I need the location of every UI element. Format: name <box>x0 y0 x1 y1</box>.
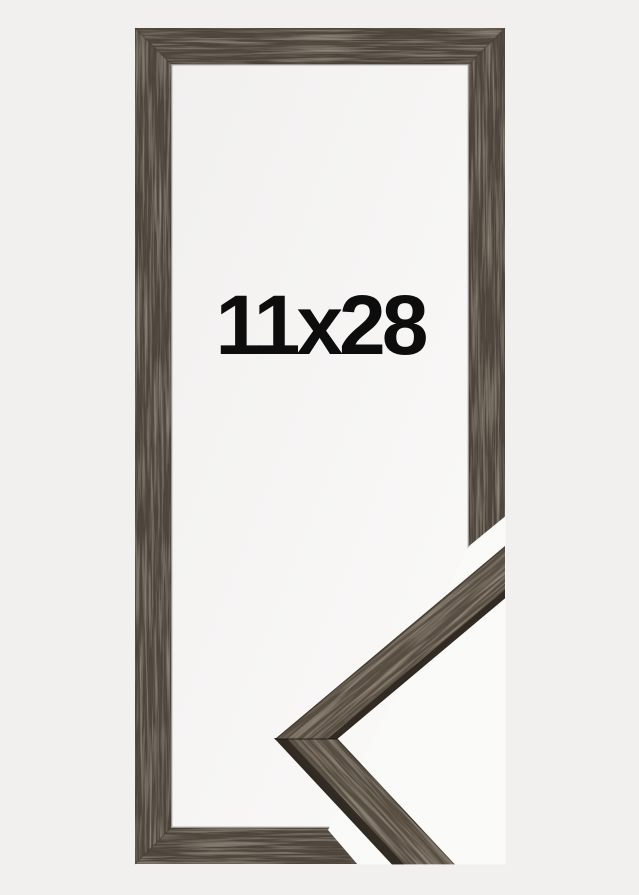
frame-product-photo: 11x28 <box>0 0 639 895</box>
product-photo-stage: 11x28 <box>0 0 639 895</box>
size-label: 11x28 <box>216 278 427 372</box>
frame-bar-top <box>135 28 505 64</box>
frame-bar-left <box>135 28 171 864</box>
